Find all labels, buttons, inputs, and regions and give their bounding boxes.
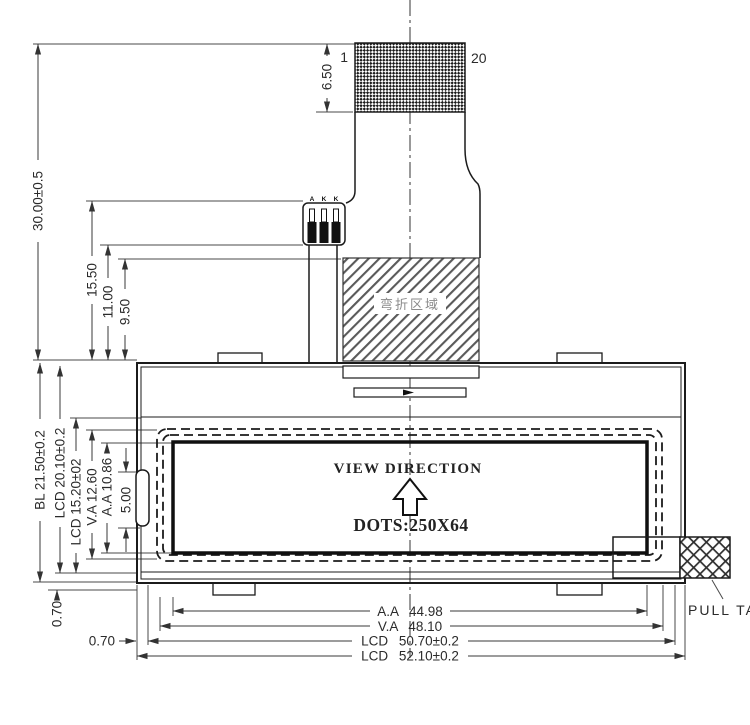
- view-direction-label: VIEW DIRECTION: [334, 461, 483, 477]
- fpc-foldover: [343, 366, 479, 378]
- pin-label-k2: K: [334, 196, 339, 203]
- dim-va-height: V.A 12.60: [85, 468, 100, 525]
- pull-tab: [680, 537, 730, 578]
- dim-fpc-step-1: 15.50: [85, 263, 100, 297]
- dim-connector-height: 6.50: [320, 64, 335, 90]
- dim-edge-offset-bottom: 0.70: [89, 634, 115, 649]
- lcd-module-outline-drawing: A K K 弯折区域: [0, 0, 750, 725]
- dim-module-width: LCD 52.10±0.2: [361, 649, 459, 664]
- dim-lcd-width: LCD 50.70±0.2: [361, 634, 459, 649]
- dim-aa-width: A.A 44.98: [377, 604, 443, 619]
- bend-area-label: 弯折区域: [380, 297, 440, 312]
- pull-tab-leader-line: [712, 580, 723, 599]
- view-direction-arrow: [394, 479, 426, 515]
- bottom-tab-left: [213, 583, 255, 595]
- top-tab-right: [557, 353, 602, 363]
- dim-va-width: V.A 48.10: [378, 619, 442, 634]
- dim-lcd-inner-height: LCD 15.20±02: [69, 459, 84, 546]
- dim-lcd-height: LCD 20.10±0.2: [53, 428, 68, 519]
- left-notch: [136, 470, 149, 526]
- dim-fpc-step-3: 9.50: [118, 299, 133, 325]
- dim-fpc-step-2: 11.00: [101, 286, 116, 319]
- pin-label-k1: K: [322, 196, 327, 203]
- pin20-label: 20: [471, 50, 487, 66]
- bottom-tab-right: [557, 583, 602, 595]
- dots-label: DOTS:250X64: [353, 515, 468, 535]
- fpc-contact-zone: [355, 43, 465, 112]
- pin-label-a: A: [310, 196, 315, 203]
- pin1-label: 1: [340, 49, 348, 65]
- dim-notch-height: 5.00: [119, 487, 134, 513]
- dim-overall-height: 30.00±0.5: [31, 171, 46, 231]
- pull-tab-label: PULL TAB: [688, 602, 750, 618]
- dim-aa-height: A.A 10.86: [100, 458, 115, 517]
- dim-bl-height: BL 21.50±0.2: [33, 430, 48, 510]
- lcd-module-body: VIEW DIRECTION DOTS:250X64: [136, 353, 730, 595]
- dim-edge-offset-left: 0.70: [50, 601, 65, 627]
- top-tab-left: [218, 353, 262, 363]
